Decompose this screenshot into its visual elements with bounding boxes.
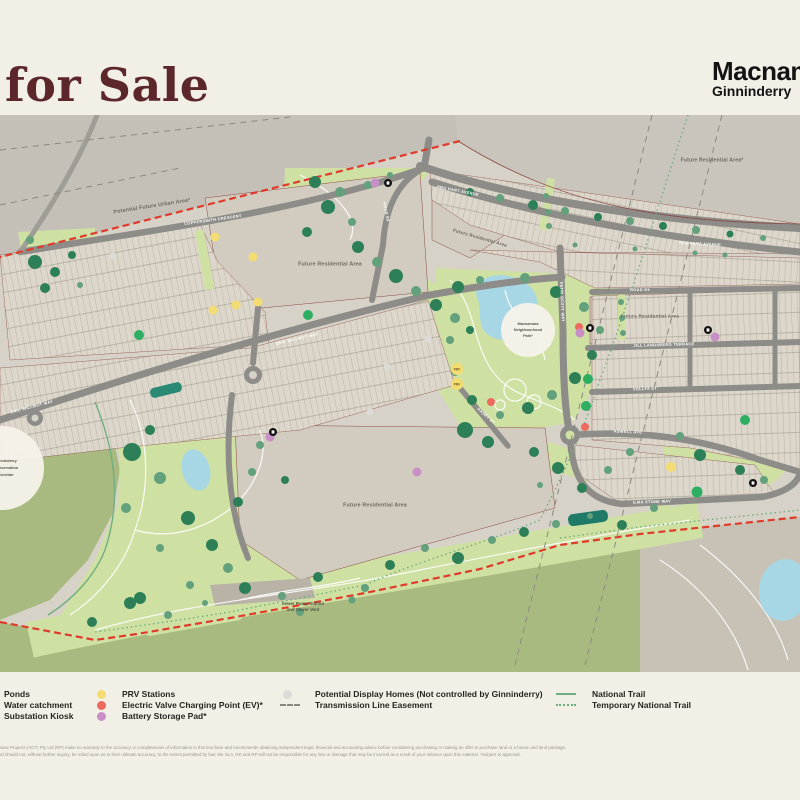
road-top-access bbox=[424, 140, 429, 168]
park-label-line3: Park* bbox=[523, 334, 533, 338]
conservation-label-line2: Conservation bbox=[0, 466, 19, 470]
legend-temp-trail-label: Temporary National Trail bbox=[592, 700, 691, 710]
legend-display-home-dot bbox=[283, 690, 292, 699]
street-sollya: SOLLYA ST bbox=[633, 386, 658, 392]
legend-national-trail-swatch bbox=[556, 693, 576, 695]
brand-logo: Macnamara Ginninderry bbox=[712, 58, 800, 99]
area-label-fra-south: Future Residential Area bbox=[343, 502, 407, 508]
disclaimer-line1: developments (RD) and Riverview Projects… bbox=[0, 744, 800, 751]
park-label-line1: Macnamara bbox=[518, 322, 540, 326]
legend-display-home-label: Potential Display Homes (Not controlled … bbox=[315, 689, 543, 699]
conservation-label-line3: Corridor bbox=[0, 473, 14, 477]
brand-name: Macnamara bbox=[712, 58, 800, 84]
legend-water-catchment-label: Water catchment bbox=[4, 700, 72, 710]
legend-temp-trail-swatch bbox=[556, 704, 576, 706]
street-aswell: ASWELL AVE bbox=[614, 429, 643, 435]
legend-battery-dot bbox=[97, 712, 106, 721]
legend-prv-label: PRV Stations bbox=[122, 689, 175, 699]
legend-battery-label: Battery Storage Pad* bbox=[122, 711, 207, 721]
page-title: for Sale bbox=[5, 58, 210, 112]
park-label-line2: Neighbourhood bbox=[514, 328, 543, 332]
conservation-label-line1: Ginninderry bbox=[0, 459, 18, 463]
legend-national-trail-label: National Trail bbox=[592, 689, 645, 699]
legend-transmission-label: Transmission Line Easement bbox=[315, 700, 432, 710]
estate-map: PRV PRV Macnamara Neighbourhood Park* Gi… bbox=[0, 115, 800, 672]
area-label-fra-west: Future Residential Area bbox=[298, 261, 362, 267]
legend-prv-dot bbox=[97, 690, 106, 699]
sewer-label-line1: Sewer Pump Station bbox=[282, 601, 325, 606]
legend-substation-kiosk-label: Substation Kiosk bbox=[4, 711, 73, 721]
prv-badge-label: PRV bbox=[454, 367, 461, 371]
area-label-fra-northeast: Future Residential Area* bbox=[681, 157, 744, 163]
area-label-fra-east: Future Residential Area bbox=[621, 313, 679, 319]
road-e9 bbox=[592, 288, 800, 292]
brand-subname: Ginninderry bbox=[712, 84, 800, 99]
legend-ev-label: Electric Valve Charging Point (EV)* bbox=[122, 700, 263, 710]
sewer-label-line2: and Sewer Vent bbox=[287, 607, 320, 612]
legend-ev-dot bbox=[97, 701, 106, 710]
street-road-e9: ROAD E9 bbox=[630, 287, 650, 292]
legend-transmission-swatch bbox=[280, 704, 300, 706]
legend-ponds-label: Ponds bbox=[4, 689, 30, 699]
disclaimer: developments (RD) and Riverview Projects… bbox=[0, 744, 800, 758]
prv-badge-label: PRV bbox=[454, 382, 461, 386]
disclaimer-line2: or illustrative purposes only and should… bbox=[0, 751, 800, 758]
